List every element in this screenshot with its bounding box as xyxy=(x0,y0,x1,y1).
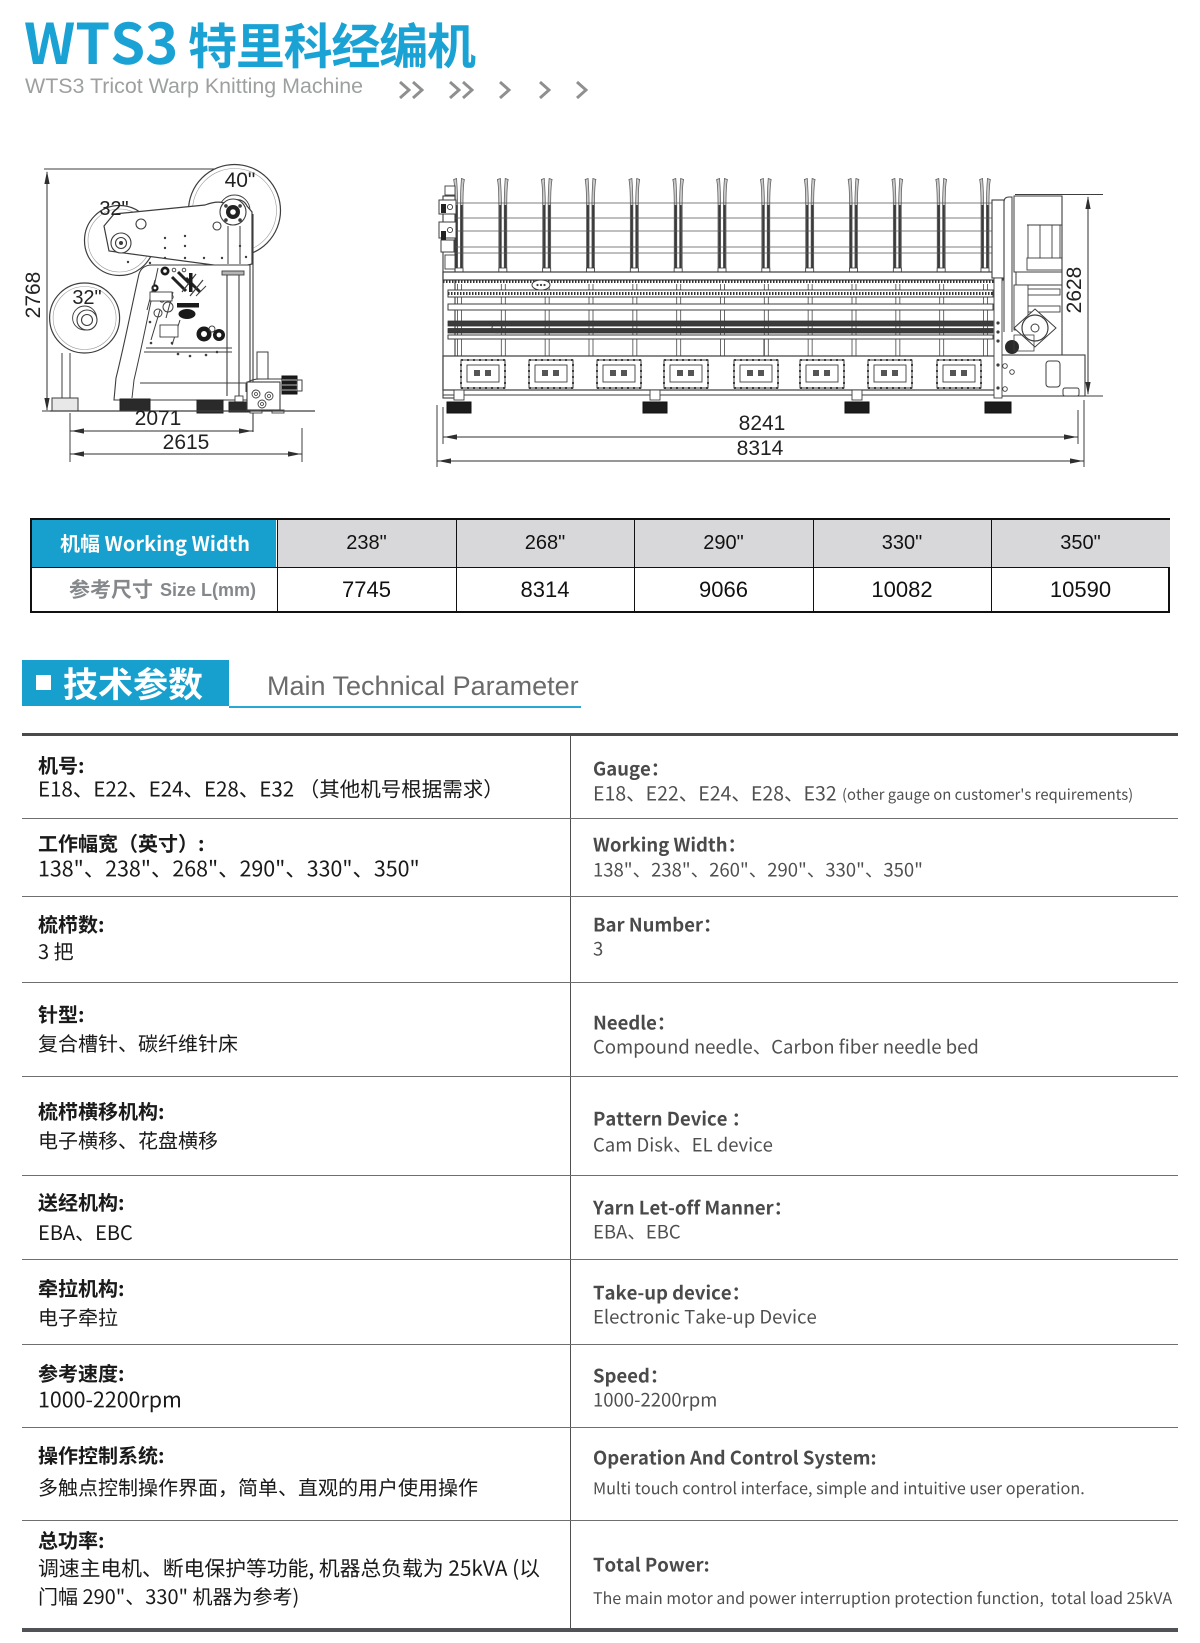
svg-text:2768: 2768 xyxy=(22,272,45,319)
svg-text:2071: 2071 xyxy=(135,407,182,430)
svg-text:32": 32" xyxy=(72,287,101,309)
svg-text:40": 40" xyxy=(225,169,256,192)
svg-text:32": 32" xyxy=(99,198,128,220)
svg-text:8314: 8314 xyxy=(737,437,784,460)
svg-text:2628: 2628 xyxy=(1063,267,1086,314)
svg-text:8241: 8241 xyxy=(739,412,786,435)
svg-text:2615: 2615 xyxy=(163,431,210,454)
